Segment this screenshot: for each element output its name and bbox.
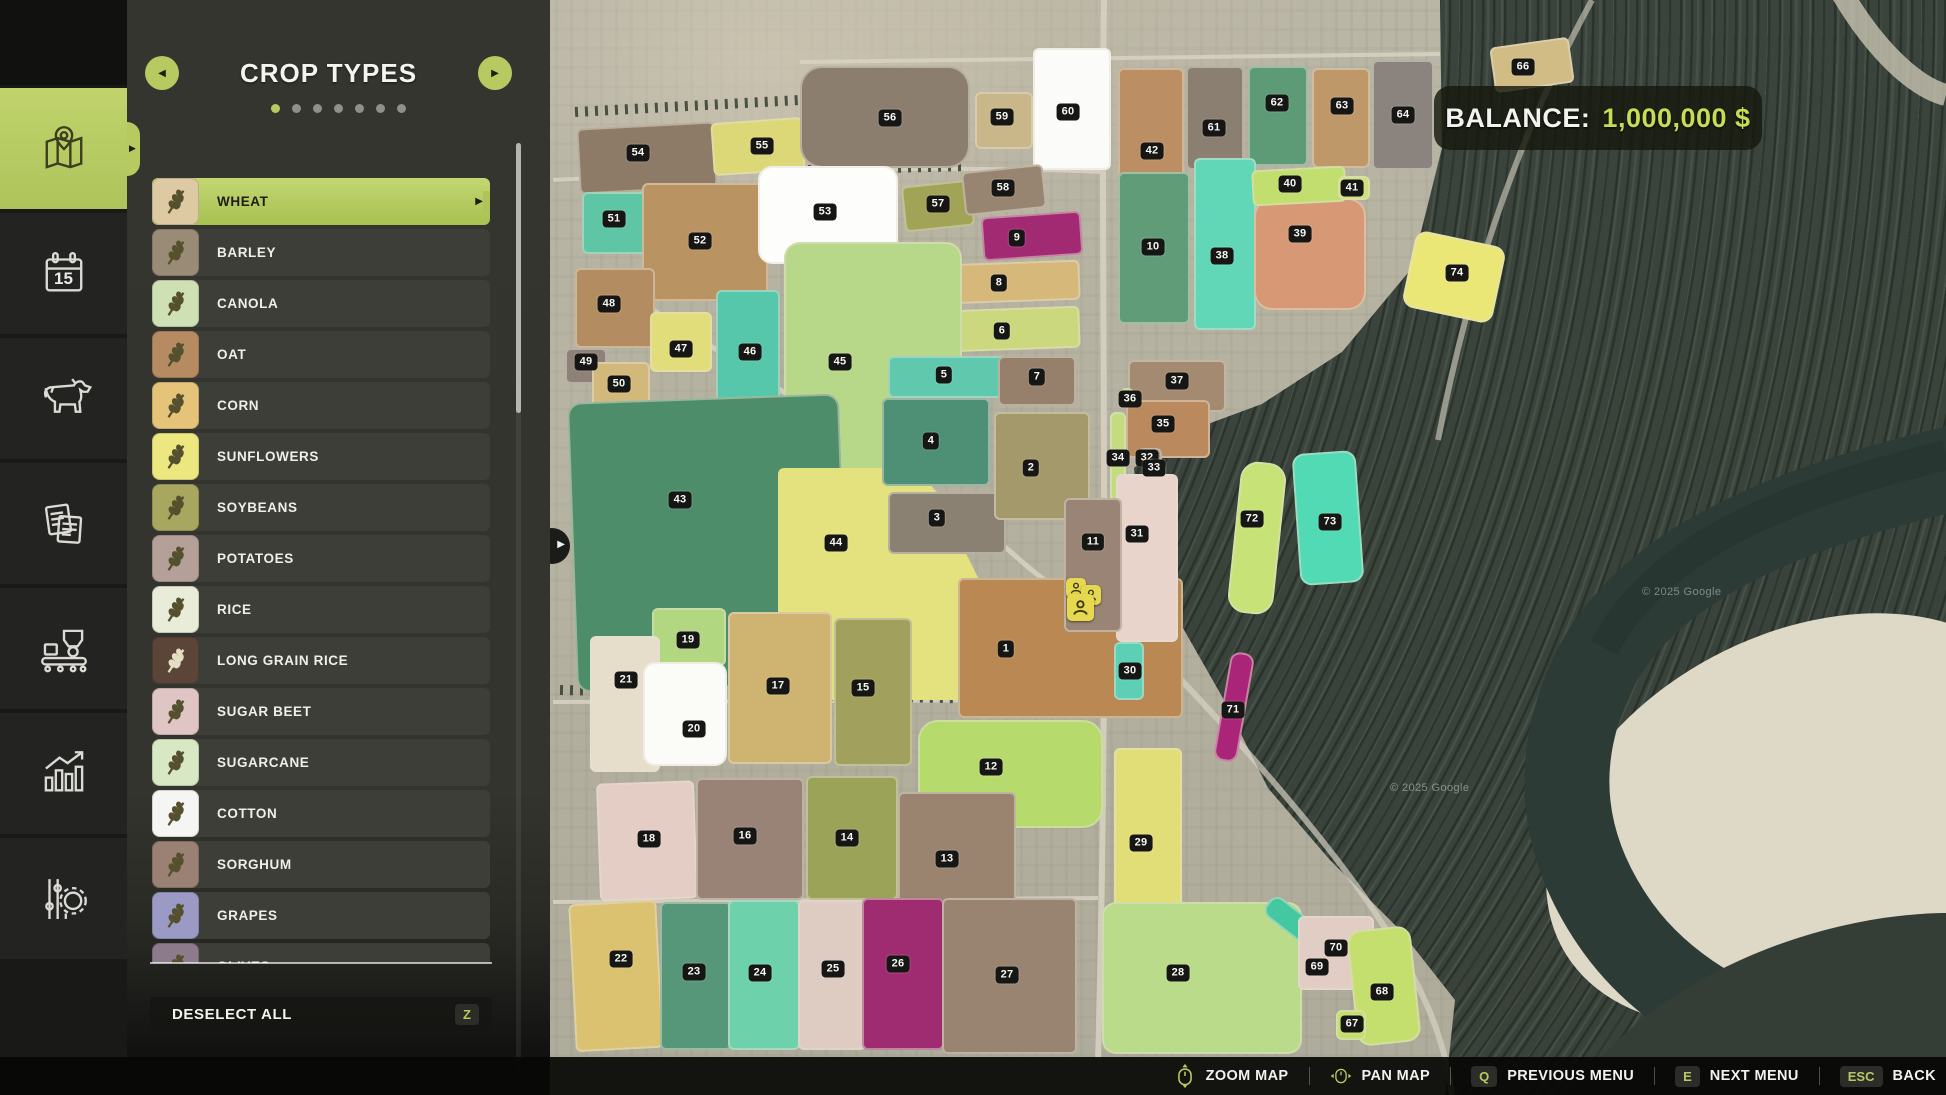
mouse-pan-icon: [1330, 1063, 1352, 1089]
crop-label: SOYBEANS: [199, 500, 298, 515]
balance-value: 1,000,000 $: [1602, 103, 1750, 134]
barley-icon: [152, 229, 199, 276]
crop-row-grapes[interactable]: GRAPES: [152, 892, 490, 939]
sidebar-item-map[interactable]: [0, 88, 127, 209]
sugar-beet-icon: [152, 688, 199, 735]
bottom-action-back[interactable]: ESCBACK: [1840, 1066, 1936, 1087]
crop-row-corn[interactable]: CORN: [152, 382, 490, 429]
oat-icon: [152, 331, 199, 378]
potatoes-icon: [152, 535, 199, 582]
key-hint-esc: ESC: [1840, 1066, 1883, 1087]
soybeans-icon: [152, 484, 199, 531]
page-dot-5[interactable]: [355, 104, 364, 113]
crop-label: GRAPES: [199, 908, 278, 923]
chevron-right-icon: ▶: [557, 539, 565, 550]
crop-row-sugarcane[interactable]: SUGARCANE: [152, 739, 490, 786]
page-dot-4[interactable]: [334, 104, 343, 113]
key-hint-q: Q: [1471, 1066, 1497, 1087]
separator: [1309, 1067, 1310, 1085]
production-icon: [35, 620, 93, 678]
deselect-all-label: DESELECT ALL: [156, 1006, 455, 1023]
map-icon: [35, 120, 93, 178]
crop-label: POTATOES: [199, 551, 294, 566]
page-dot-3[interactable]: [313, 104, 322, 113]
map-watermark: © 2025 Google: [1390, 782, 1469, 794]
sidebar-item-calendar[interactable]: 15: [0, 213, 127, 334]
sidebar: ▶15: [0, 0, 127, 1095]
balance-label: BALANCE:: [1445, 103, 1590, 134]
crop-label: OAT: [199, 347, 246, 362]
wheat-icon: [152, 178, 199, 225]
list-cutline: [150, 962, 492, 964]
crop-row-olives[interactable]: OLIVES: [152, 943, 490, 963]
crop-row-long-grain-rice[interactable]: LONG GRAIN RICE: [152, 637, 490, 684]
long-grain-rice-icon: [152, 637, 199, 684]
key-hint-z: Z: [455, 1004, 479, 1025]
olives-icon: [152, 943, 199, 963]
next-page-button[interactable]: ▶: [478, 56, 512, 90]
crop-label: COTTON: [199, 806, 277, 821]
crop-row-sunflowers[interactable]: SUNFLOWERS: [152, 433, 490, 480]
sidebar-top-spacer: [0, 0, 127, 85]
page-dot-2[interactable]: [292, 104, 301, 113]
bottom-action-label: BACK: [1893, 1068, 1937, 1084]
rice-icon: [152, 586, 199, 633]
sugarcane-icon: [152, 739, 199, 786]
key-hint-e: E: [1675, 1066, 1700, 1087]
bottom-action-label: PREVIOUS MENU: [1507, 1068, 1634, 1084]
bottom-action-label: NEXT MENU: [1710, 1068, 1799, 1084]
calendar-day-label: 15: [54, 269, 73, 289]
canola-icon: [152, 280, 199, 327]
sidebar-item-animals[interactable]: [0, 338, 127, 459]
crop-label: SUGAR BEET: [199, 704, 312, 719]
page-dot-1[interactable]: [271, 104, 280, 113]
sunflowers-icon: [152, 433, 199, 480]
page-dots: [127, 104, 550, 113]
crop-label: LONG GRAIN RICE: [199, 653, 348, 668]
crop-label: SORGHUM: [199, 857, 292, 872]
separator: [1654, 1067, 1655, 1085]
contracts-icon: [35, 495, 93, 553]
bottom-action-zoom-map[interactable]: ZOOM MAP: [1174, 1063, 1289, 1089]
crop-row-sugar-beet[interactable]: SUGAR BEET: [152, 688, 490, 735]
bottom-action-next-menu[interactable]: ENEXT MENU: [1675, 1066, 1799, 1087]
sidebar-item-production[interactable]: [0, 588, 127, 709]
crop-row-cotton[interactable]: COTTON: [152, 790, 490, 837]
crop-row-rice[interactable]: RICE: [152, 586, 490, 633]
crop-types-panel: ◀ CROP TYPES ▶ WHEAT▶BARLEYCANOLAOATCORN…: [127, 0, 550, 1095]
bottom-action-label: ZOOM MAP: [1206, 1068, 1289, 1084]
crop-label: WHEAT: [199, 194, 269, 209]
crop-row-potatoes[interactable]: POTATOES: [152, 535, 490, 582]
selected-row-bump: [483, 191, 490, 213]
crop-row-canola[interactable]: CANOLA: [152, 280, 490, 327]
bottom-help-bar: ZOOM MAPPAN MAPQPREVIOUS MENUENEXT MENUE…: [0, 1057, 1946, 1095]
crop-label: CANOLA: [199, 296, 278, 311]
crop-label: SUNFLOWERS: [199, 449, 319, 464]
settings-icon: [35, 870, 93, 928]
bottom-action-pan-map[interactable]: PAN MAP: [1330, 1063, 1431, 1089]
crop-list: WHEAT▶BARLEYCANOLAOATCORNSUNFLOWERSSOYBE…: [152, 178, 490, 963]
crop-label: CORN: [199, 398, 259, 413]
sidebar-item-contracts[interactable]: [0, 463, 127, 584]
balance-display: BALANCE: 1,000,000 $: [1434, 86, 1762, 150]
separator: [1450, 1067, 1451, 1085]
chevron-right-icon: ▶: [491, 68, 499, 79]
crop-label: BARLEY: [199, 245, 276, 260]
crop-row-barley[interactable]: BARLEY: [152, 229, 490, 276]
scrollbar-thumb[interactable]: [516, 143, 521, 413]
crop-label: SUGARCANE: [199, 755, 309, 770]
bottom-action-previous-menu[interactable]: QPREVIOUS MENU: [1471, 1066, 1634, 1087]
cotton-icon: [152, 790, 199, 837]
prev-page-button[interactable]: ◀: [145, 56, 179, 90]
page-dot-6[interactable]: [376, 104, 385, 113]
sidebar-item-statistics[interactable]: [0, 713, 127, 834]
map-watermark: © 2025 Google: [1642, 586, 1721, 598]
crop-row-wheat[interactable]: WHEAT▶: [152, 178, 490, 225]
separator: [1819, 1067, 1820, 1085]
page-dot-7[interactable]: [397, 104, 406, 113]
active-tab-arrow-icon: ▶: [129, 143, 136, 154]
corn-icon: [152, 382, 199, 429]
crop-row-oat[interactable]: OAT: [152, 331, 490, 378]
mouse-zoom-icon: [1174, 1063, 1196, 1089]
crop-row-sorghum[interactable]: SORGHUM: [152, 841, 490, 888]
sidebar-item-settings[interactable]: [0, 838, 127, 959]
deselect-all-button[interactable]: DESELECT ALL Z: [150, 997, 492, 1031]
sorghum-icon: [152, 841, 199, 888]
bottom-action-label: PAN MAP: [1362, 1068, 1431, 1084]
selected-row-arrow-icon: ▶: [475, 196, 483, 207]
crop-row-soybeans[interactable]: SOYBEANS: [152, 484, 490, 531]
cow-icon: [35, 370, 93, 428]
grapes-icon: [152, 892, 199, 939]
stats-icon: [35, 745, 93, 803]
chevron-left-icon: ◀: [158, 68, 166, 79]
page-title: CROP TYPES: [240, 58, 417, 89]
crop-label: RICE: [199, 602, 252, 617]
